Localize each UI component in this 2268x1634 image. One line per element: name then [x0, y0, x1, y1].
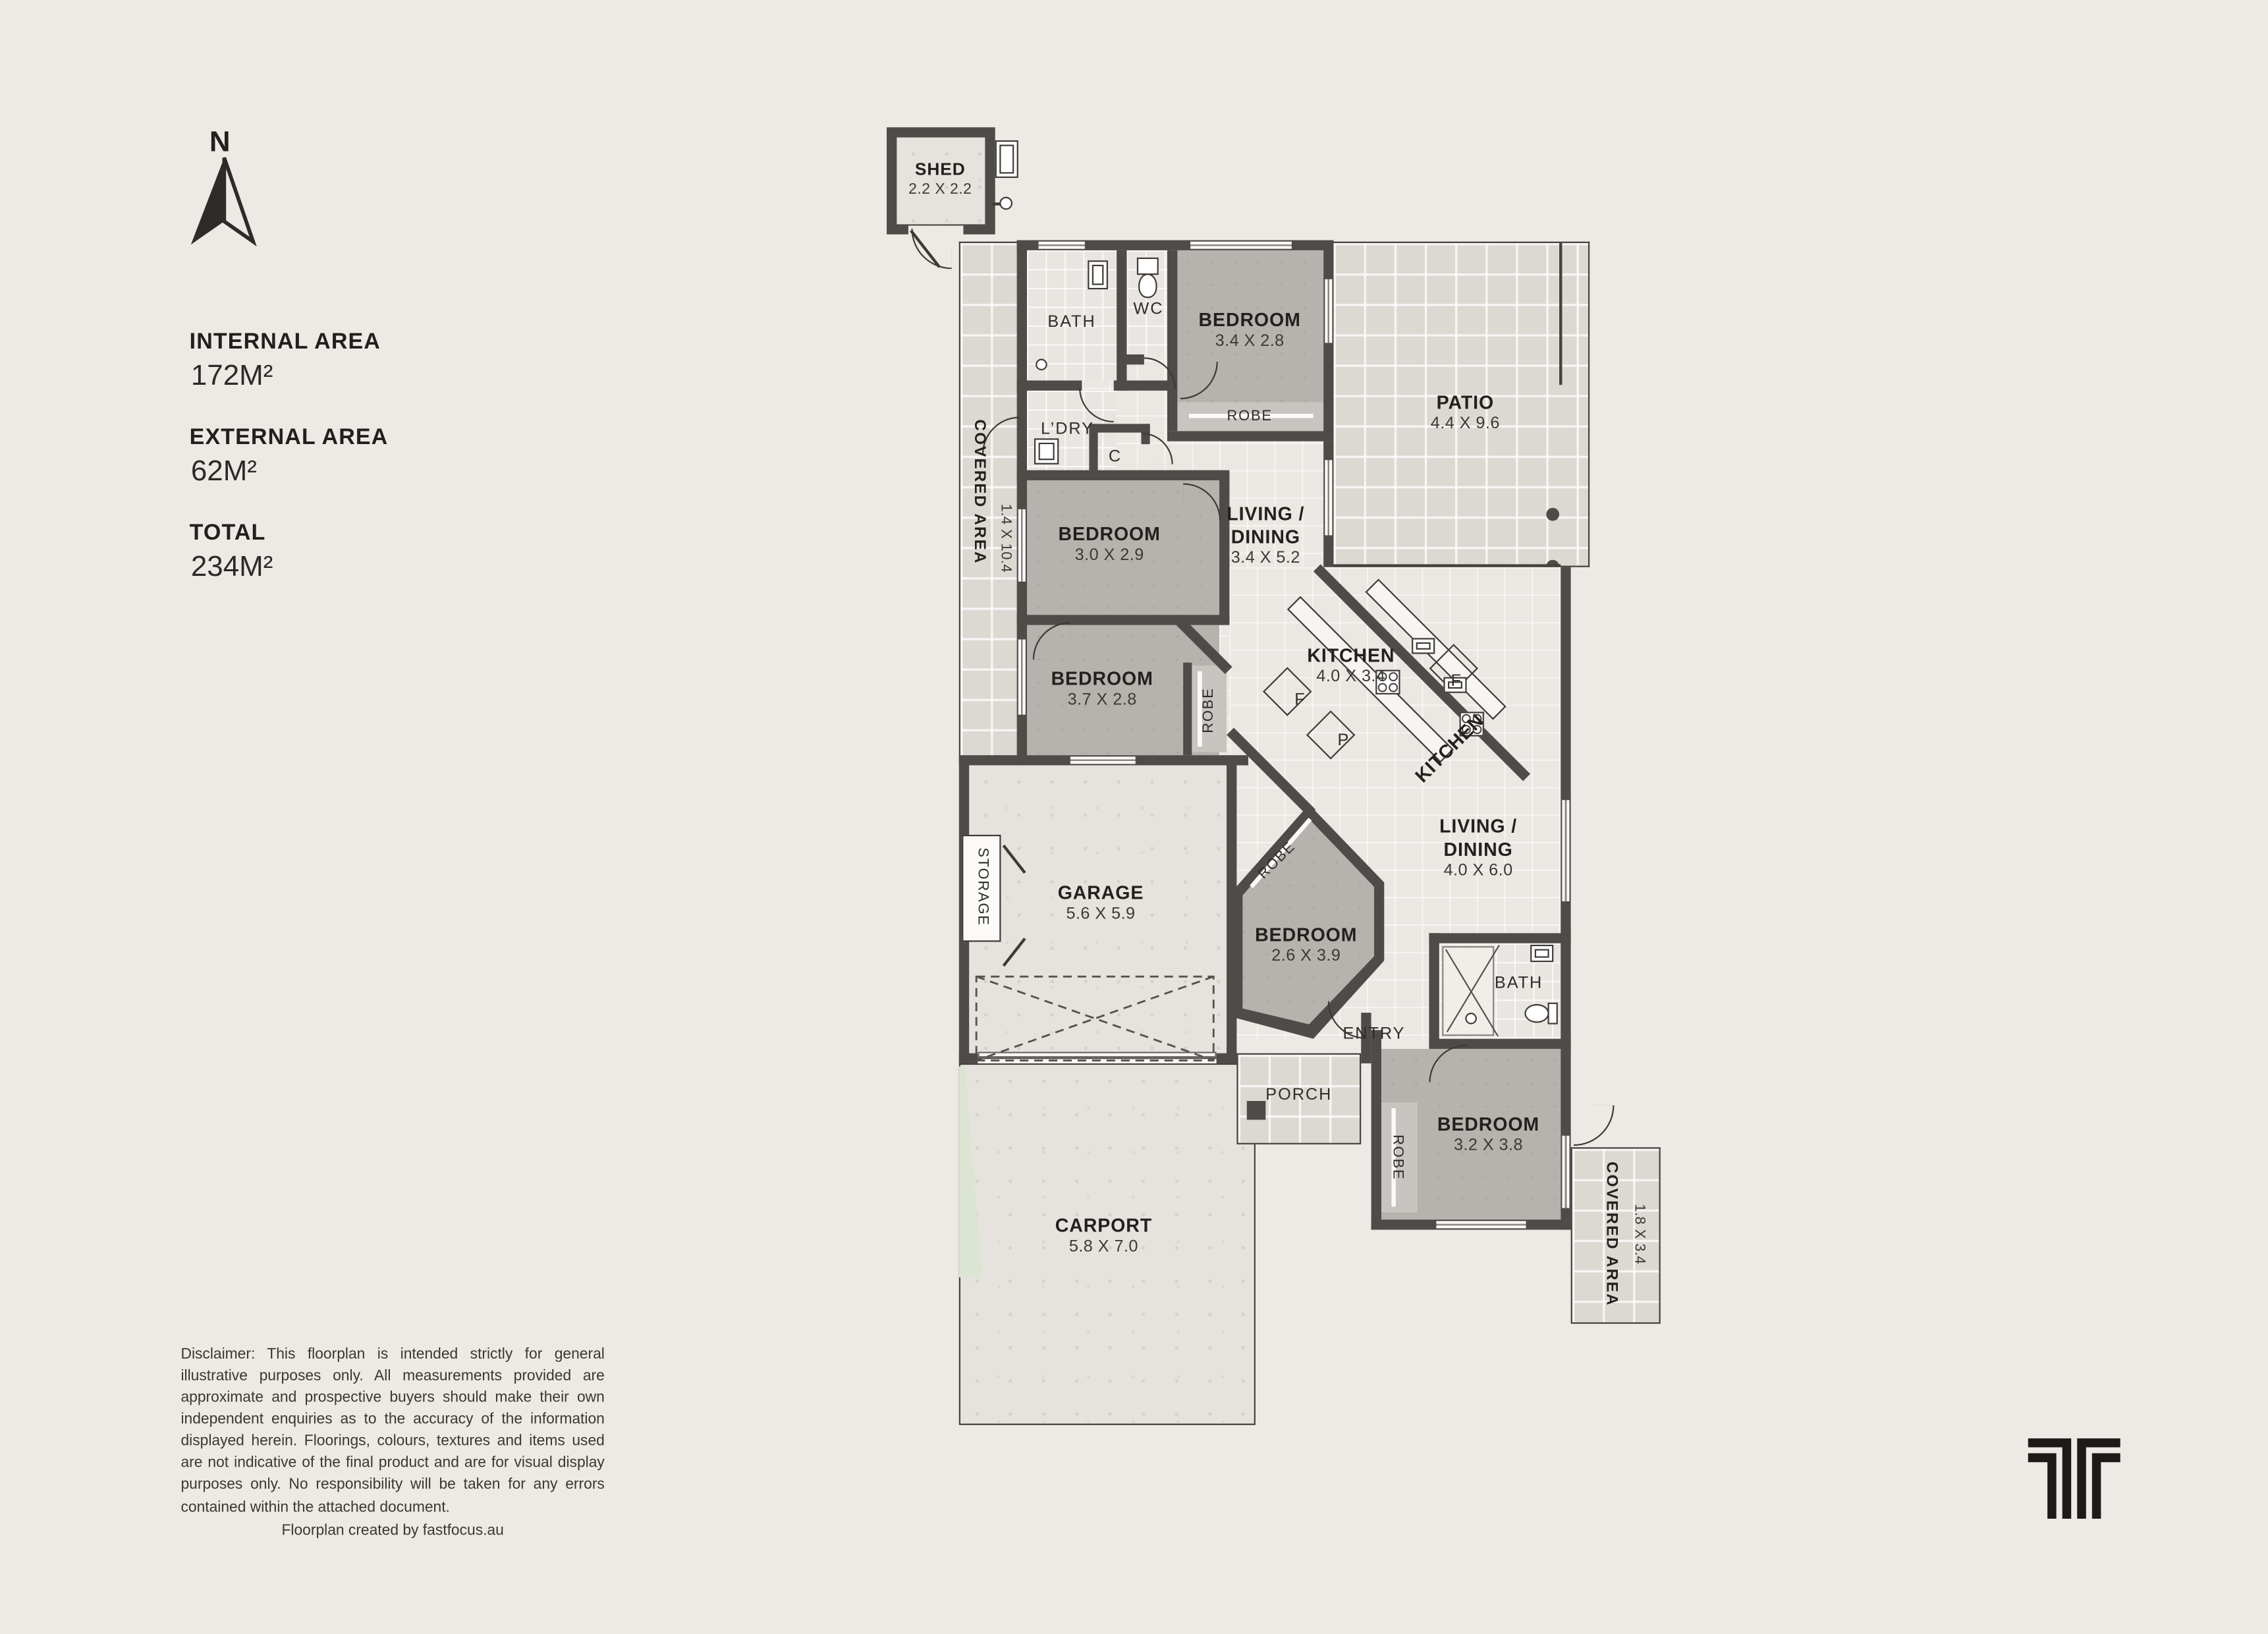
covered-area-1 [959, 242, 1023, 764]
window [1325, 279, 1331, 343]
covered-area-2-label: COVERED AREA [1603, 1162, 1620, 1307]
toilet-tank-icon [1547, 1003, 1557, 1025]
credit-line: Floorplan created by fastfocus.au [180, 1520, 604, 1542]
window [1070, 756, 1136, 764]
living-2-label-1: LIVING / [1439, 815, 1517, 837]
bath-1-label: BATH [1047, 314, 1095, 331]
wall [1183, 663, 1192, 756]
wall [1371, 1030, 1381, 1229]
window [1018, 509, 1025, 582]
garage-parking-outline [975, 975, 1215, 1062]
wall [1429, 933, 1570, 943]
vanity-icon [1530, 945, 1553, 962]
living-1-label-2: DINING [1231, 526, 1300, 548]
bedroom-4-dims: 2.6 X 3.9 [1271, 947, 1341, 965]
wall [1167, 431, 1334, 441]
carport-label: CARPORT [1055, 1214, 1152, 1236]
laundry-label: L’DRY [1041, 421, 1094, 438]
garage-label: GARAGE [1058, 882, 1144, 903]
bedroom-1-dims: 3.4 X 2.8 [1215, 333, 1285, 350]
pantry-label: P [1337, 732, 1350, 749]
shed-dims: 2.2 X 2.2 [908, 181, 972, 198]
compass-north-label: N [209, 127, 231, 160]
wall [1219, 480, 1229, 625]
covered-area-1-label: COVERED AREA [970, 420, 987, 565]
internal-area-value: 172M² [191, 360, 389, 394]
bedroom-2-dims: 3.0 X 2.9 [1075, 547, 1144, 564]
living-2-dims: 4.0 X 6.0 [1444, 862, 1513, 880]
kitchen-1-dims: 4.0 X 3.4 [1316, 668, 1385, 685]
garage-dims: 5.6 X 5.9 [1066, 906, 1135, 923]
fridge-label: F [1294, 692, 1306, 709]
window [1436, 1221, 1526, 1227]
wall [1167, 250, 1177, 431]
covered-area-1-dims: 1.4 X 10.4 [997, 504, 1013, 573]
floorplan-canvas: N INTERNAL AREA 172M² EXTERNAL AREA 62M²… [0, 0, 2268, 1633]
patio-edge-line [1334, 564, 1561, 566]
washing-machine-icon [1034, 438, 1059, 465]
entry-label: ENTRY [1342, 1026, 1405, 1043]
patio-eave-line [1559, 243, 1561, 385]
disclaimer: Disclaimer: This floorplan is intended s… [180, 1344, 604, 1542]
robe-2-label: ROBE [1202, 687, 1217, 733]
bedroom-5-label: BEDROOM [1437, 1113, 1539, 1135]
brand-logo-icon [2022, 1426, 2126, 1533]
living-1-label-1: LIVING / [1227, 503, 1304, 524]
wc-label: WC [1133, 301, 1163, 318]
wall [1127, 354, 1144, 364]
porch-label: PORCH [1265, 1086, 1332, 1104]
patio-dims: 4.4 X 9.6 [1431, 415, 1500, 432]
living-2-label-2: DINING [1444, 838, 1513, 860]
bedroom-1-label: BEDROOM [1199, 309, 1301, 331]
shed-label: SHED [915, 159, 966, 180]
wall [1017, 470, 1230, 480]
wall [1429, 933, 1439, 1049]
vanity-icon [1088, 260, 1108, 289]
bedroom-3-label: BEDROOM [1051, 667, 1153, 689]
tap-icon [1036, 359, 1047, 371]
storage-label: STORAGE [974, 847, 990, 926]
wall [1017, 615, 1230, 625]
covered-area-2-dims: 1.8 X 3.4 [1631, 1204, 1647, 1264]
external-area-label: EXTERNAL AREA [190, 426, 389, 452]
patio-post [1546, 508, 1559, 521]
external-area-value: 62M² [191, 456, 389, 490]
bedroom-4-label: BEDROOM [1255, 924, 1357, 945]
wall [1117, 250, 1126, 391]
tap-stem [992, 202, 1001, 204]
internal-area-label: INTERNAL AREA [190, 330, 389, 356]
bedroom-3-dims: 3.7 X 2.8 [1068, 692, 1137, 709]
toilet-tank-icon [1137, 258, 1159, 275]
window [1190, 242, 1292, 249]
robe-1-label: ROBE [1227, 408, 1273, 424]
window [1039, 242, 1085, 249]
living-1-dims: 3.4 X 5.2 [1231, 549, 1300, 567]
area-stats: INTERNAL AREA 172M² EXTERNAL AREA 62M² T… [190, 330, 389, 617]
robe-4-label: ROBE [1389, 1135, 1405, 1180]
kitchen-1-label: KITCHEN [1307, 644, 1395, 666]
floorplan-page: { "colors": {"wall":"#4f4b48","bedroom_f… [0, 0, 2268, 1634]
shed-sink-icon [995, 140, 1018, 178]
disclaimer-text: Disclaimer: This floorplan is intended s… [180, 1347, 604, 1515]
kitchen-sink-icon [1412, 638, 1435, 654]
bedroom-5-dims: 3.2 X 3.8 [1454, 1137, 1523, 1154]
total-area-value: 234M² [191, 551, 389, 585]
toilet-icon [1524, 1004, 1549, 1023]
door-arc [1574, 1106, 1614, 1146]
tap-icon [999, 197, 1012, 210]
sliding-door [1325, 460, 1331, 535]
north-arrow-icon [188, 156, 257, 252]
porch-post [1247, 1101, 1266, 1120]
wall [1017, 380, 1082, 390]
toilet-icon [1138, 273, 1157, 298]
tap-icon [1465, 1013, 1477, 1025]
window [1562, 800, 1568, 901]
carport-dims: 5.8 X 7.0 [1069, 1239, 1138, 1256]
window [1562, 1136, 1568, 1208]
fridge-label: F [1451, 673, 1462, 690]
bedroom-2-label: BEDROOM [1059, 523, 1161, 545]
cupboard-label: C [1109, 449, 1122, 466]
patio-label: PATIO [1437, 391, 1494, 413]
window [1018, 640, 1025, 715]
total-area-label: TOTAL [190, 521, 389, 547]
shed-door-arc [911, 229, 951, 269]
bath-2-label: BATH [1495, 975, 1543, 992]
